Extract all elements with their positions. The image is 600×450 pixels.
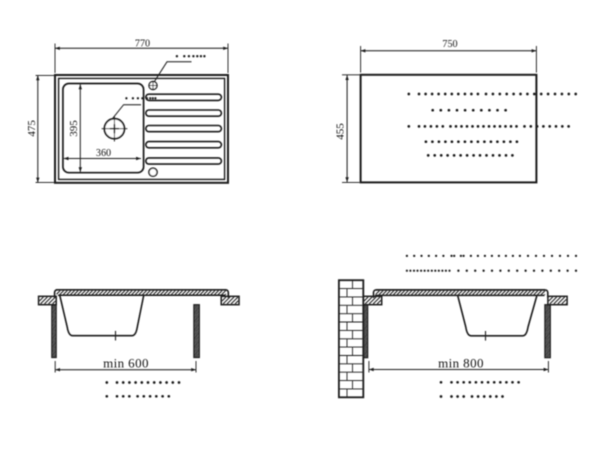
svg-text:395: 395 [68,120,80,137]
svg-text:min 800: min 800 [438,356,484,371]
svg-text:min 600: min 600 [103,356,149,371]
svg-text:455: 455 [334,123,346,140]
svg-text:770: 770 [135,39,150,50]
svg-text:360: 360 [96,148,111,159]
svg-text:750: 750 [442,39,457,50]
svg-text:475: 475 [26,120,38,137]
